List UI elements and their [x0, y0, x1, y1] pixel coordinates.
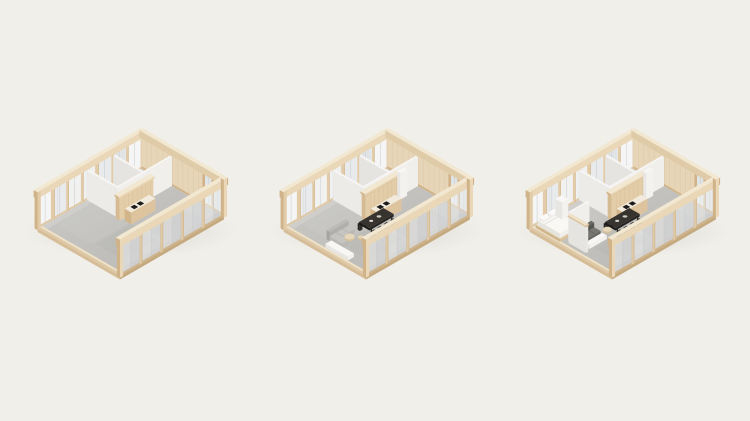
isometric-scene	[0, 0, 750, 421]
apartment-unit-open-plan	[270, 128, 484, 279]
render-canvas	[0, 0, 750, 421]
apartment-unit-with-bedroom	[516, 128, 730, 279]
apartment-unit-shell	[24, 128, 238, 279]
